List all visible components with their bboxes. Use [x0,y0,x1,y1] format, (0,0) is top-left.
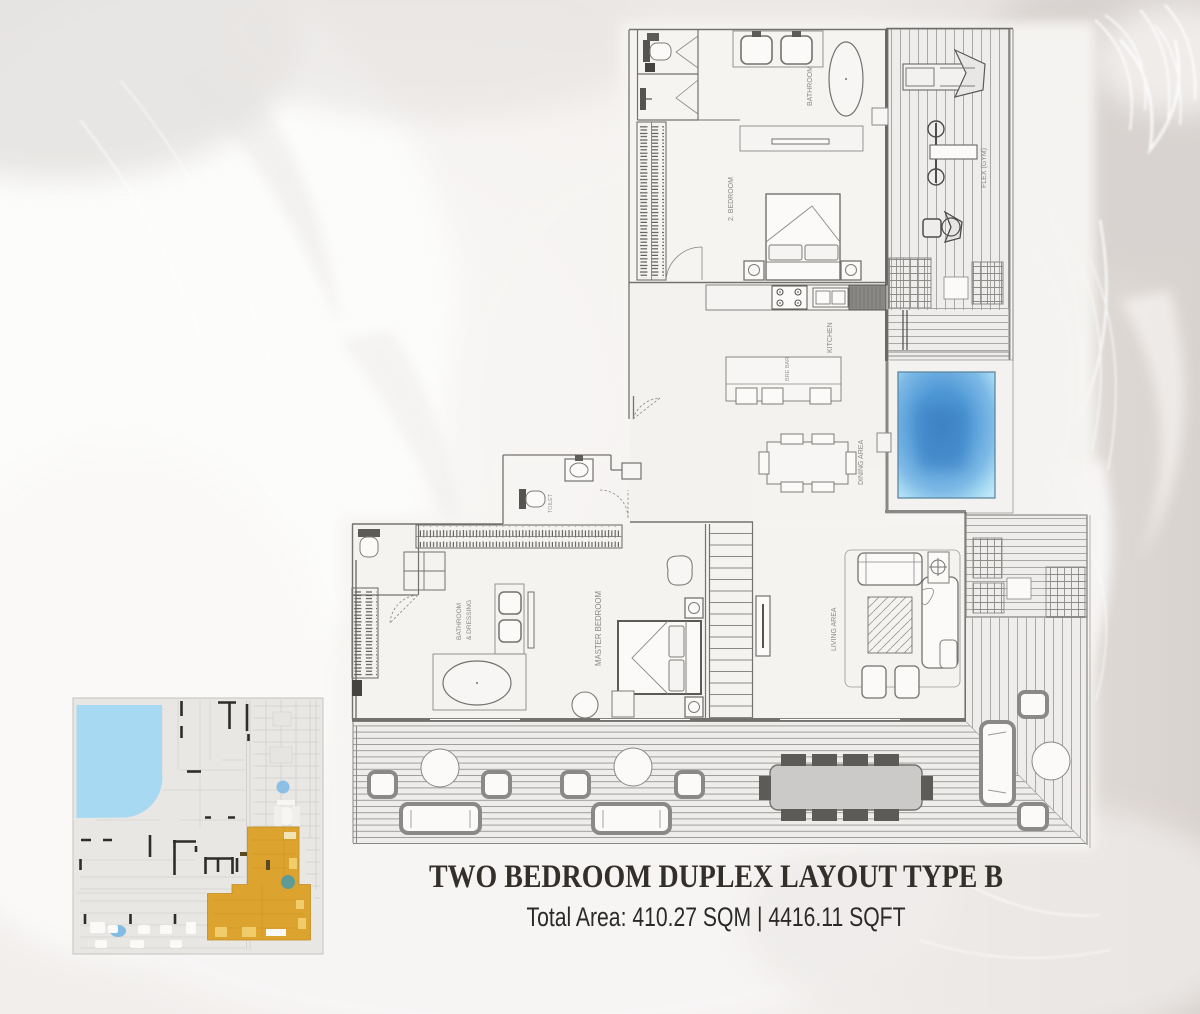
svg-text:BATHROOM: BATHROOM [456,603,463,640]
svg-text:MASTER BEDROOM: MASTER BEDROOM [594,591,603,666]
svg-text:KITCHEN: KITCHEN [827,322,834,353]
svg-text:FLEX (GYM): FLEX (GYM) [981,148,988,188]
svg-text:& DRESSING: & DRESSING [466,600,473,640]
svg-text:2. BEDROOM: 2. BEDROOM [728,177,735,221]
svg-text:TWO BEDROOM DUPLEX LAYOUT TYPE: TWO BEDROOM DUPLEX LAYOUT TYPE B [429,859,1003,895]
svg-text:TOILET: TOILET [548,493,554,513]
svg-text:BATHROOM: BATHROOM [807,66,814,106]
svg-text:Total Area: 410.27 SQM | 4416.: Total Area: 410.27 SQM | 4416.11 SQFT [527,902,906,932]
svg-text:DINING AREA: DINING AREA [858,440,865,485]
svg-text:BRE BAR: BRE BAR [785,357,791,381]
svg-text:LIVING AREA: LIVING AREA [831,607,838,651]
